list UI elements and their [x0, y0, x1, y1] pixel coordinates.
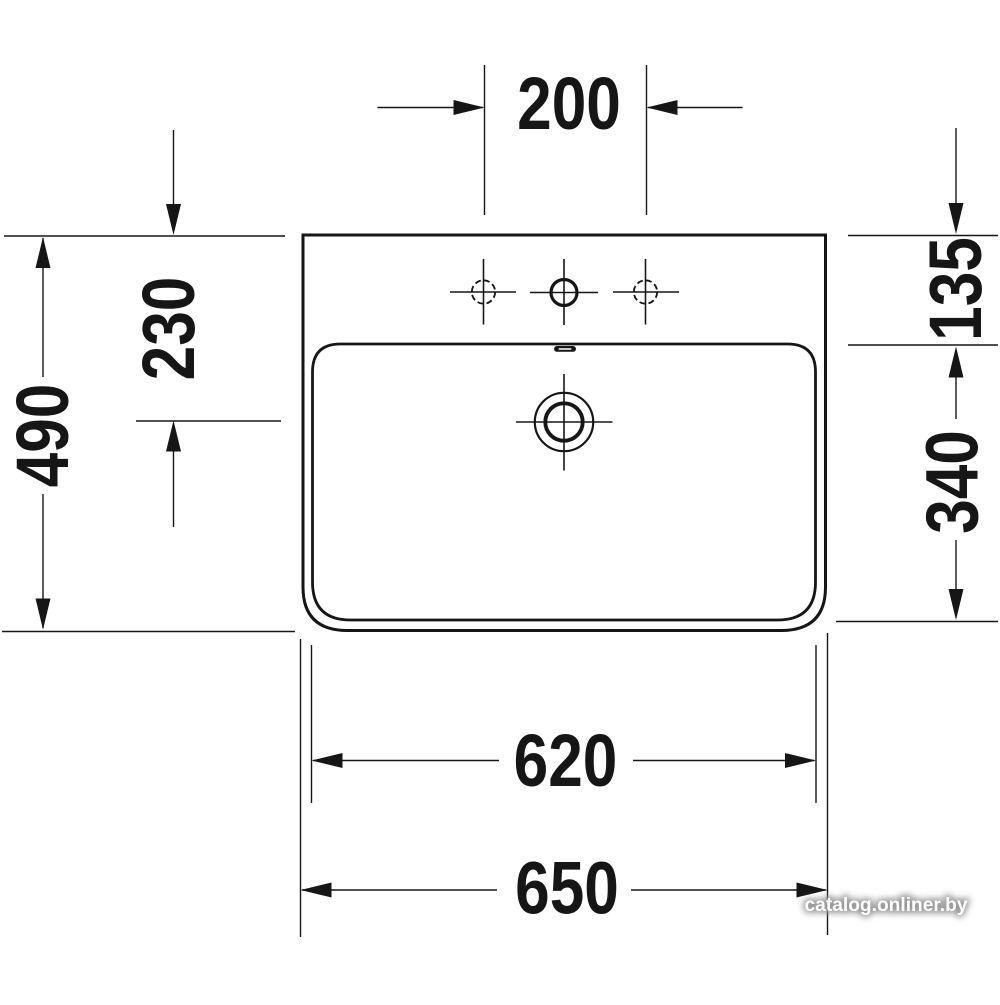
- svg-text:490: 490: [2, 384, 84, 488]
- svg-text:650: 650: [515, 847, 619, 929]
- svg-text:catalog.onliner.by: catalog.onliner.by: [805, 895, 968, 916]
- svg-text:200: 200: [517, 63, 621, 145]
- svg-text:230: 230: [128, 277, 210, 381]
- svg-text:620: 620: [514, 720, 618, 802]
- svg-text:340: 340: [911, 430, 993, 534]
- svg-text:135: 135: [915, 237, 997, 341]
